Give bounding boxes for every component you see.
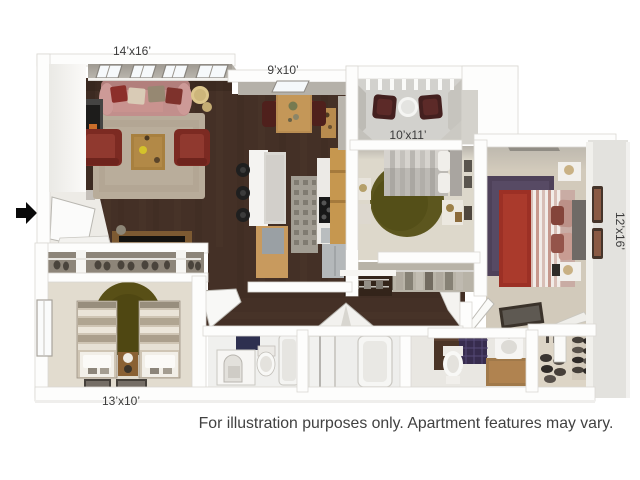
svg-text:10’x11’: 10’x11’: [389, 128, 426, 142]
svg-text:12’x16’: 12’x16’: [613, 212, 627, 250]
svg-text:13’x10’: 13’x10’: [102, 394, 140, 408]
svg-text:For illustration purposes only: For illustration purposes only. Apartmen…: [199, 415, 614, 432]
svg-text:14’x16’: 14’x16’: [113, 44, 151, 58]
svg-text:9’x10’: 9’x10’: [267, 63, 298, 77]
